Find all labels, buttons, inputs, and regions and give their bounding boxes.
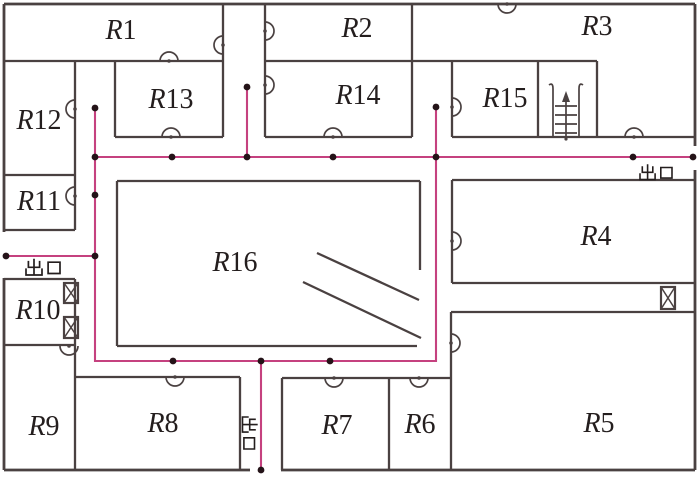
door-hinge-dot <box>417 376 421 380</box>
room-label-r12: R12 <box>15 105 61 136</box>
path-node <box>330 154 337 161</box>
path-node <box>92 253 99 260</box>
path-node <box>244 84 251 91</box>
room-label-r1: R1 <box>104 15 136 46</box>
door-hinge-dot <box>73 107 77 111</box>
exit-label <box>243 417 258 449</box>
exit-glyph <box>640 164 655 179</box>
room-label-r8: R8 <box>146 408 178 439</box>
evacuation-path-line <box>95 107 436 361</box>
path-node <box>92 105 99 112</box>
exit-glyph <box>244 438 255 449</box>
path-node <box>170 358 177 365</box>
door-hinge-dot <box>167 59 171 63</box>
exit-glyph <box>48 262 60 273</box>
room-label-r11: R11 <box>16 186 61 217</box>
room-label-r14: R14 <box>334 80 380 111</box>
door-hinge-dot <box>505 2 509 6</box>
room-label-r7: R7 <box>320 410 352 441</box>
door-hinge-dot <box>169 135 173 139</box>
door-hinge-dot <box>221 43 225 47</box>
door-hinge-dot <box>263 83 267 87</box>
exit-glyph <box>26 259 42 275</box>
door-hinge-dot <box>449 341 453 345</box>
door-hinge-dot <box>632 135 636 139</box>
room-label-r9: R9 <box>27 411 59 442</box>
room-label-r5: R5 <box>582 408 614 439</box>
room-label-r13: R13 <box>147 84 193 115</box>
door-hinge-dot <box>450 239 454 243</box>
path-node <box>327 358 334 365</box>
room-label-r15: R15 <box>481 83 527 114</box>
door-hinge-dot <box>173 375 177 379</box>
exit-glyph <box>661 168 672 179</box>
path-node <box>433 104 440 111</box>
door-hinge-dot <box>263 29 267 33</box>
floor-plan-svg: R1R2R3R4R5R6R7R8R9R10R11R12R13R14R15R16 <box>0 0 700 479</box>
exit-labels <box>26 164 672 449</box>
door-hinge-dot <box>73 194 77 198</box>
door-hinge-dot <box>332 376 336 380</box>
exit-label <box>640 164 672 179</box>
room-label-r16: R16 <box>211 247 257 278</box>
room-label-r10: R10 <box>14 295 60 326</box>
room-label-r2: R2 <box>340 13 372 44</box>
exit-label <box>26 259 60 275</box>
path-node <box>433 154 440 161</box>
room-label-r3: R3 <box>580 11 612 42</box>
room-label-r4: R4 <box>579 221 611 252</box>
door-hinge-dot <box>331 135 335 139</box>
floor-plan: R1R2R3R4R5R6R7R8R9R10R11R12R13R14R15R16 <box>0 0 700 479</box>
door-hinge-dot <box>67 344 71 348</box>
exit-glyph <box>243 417 258 432</box>
path-node <box>169 154 176 161</box>
path-node <box>92 192 99 199</box>
path-node <box>630 154 637 161</box>
elevator-icon <box>661 287 675 309</box>
path-node <box>92 154 99 161</box>
stairs-icon <box>549 84 583 140</box>
path-node <box>244 154 251 161</box>
path-node <box>258 467 265 474</box>
elevator-icons <box>64 283 675 338</box>
path-node <box>690 154 697 161</box>
path-node <box>3 253 10 260</box>
door-hinge-dot <box>450 105 454 109</box>
path-node <box>258 358 265 365</box>
room-label-r6: R6 <box>403 409 435 440</box>
